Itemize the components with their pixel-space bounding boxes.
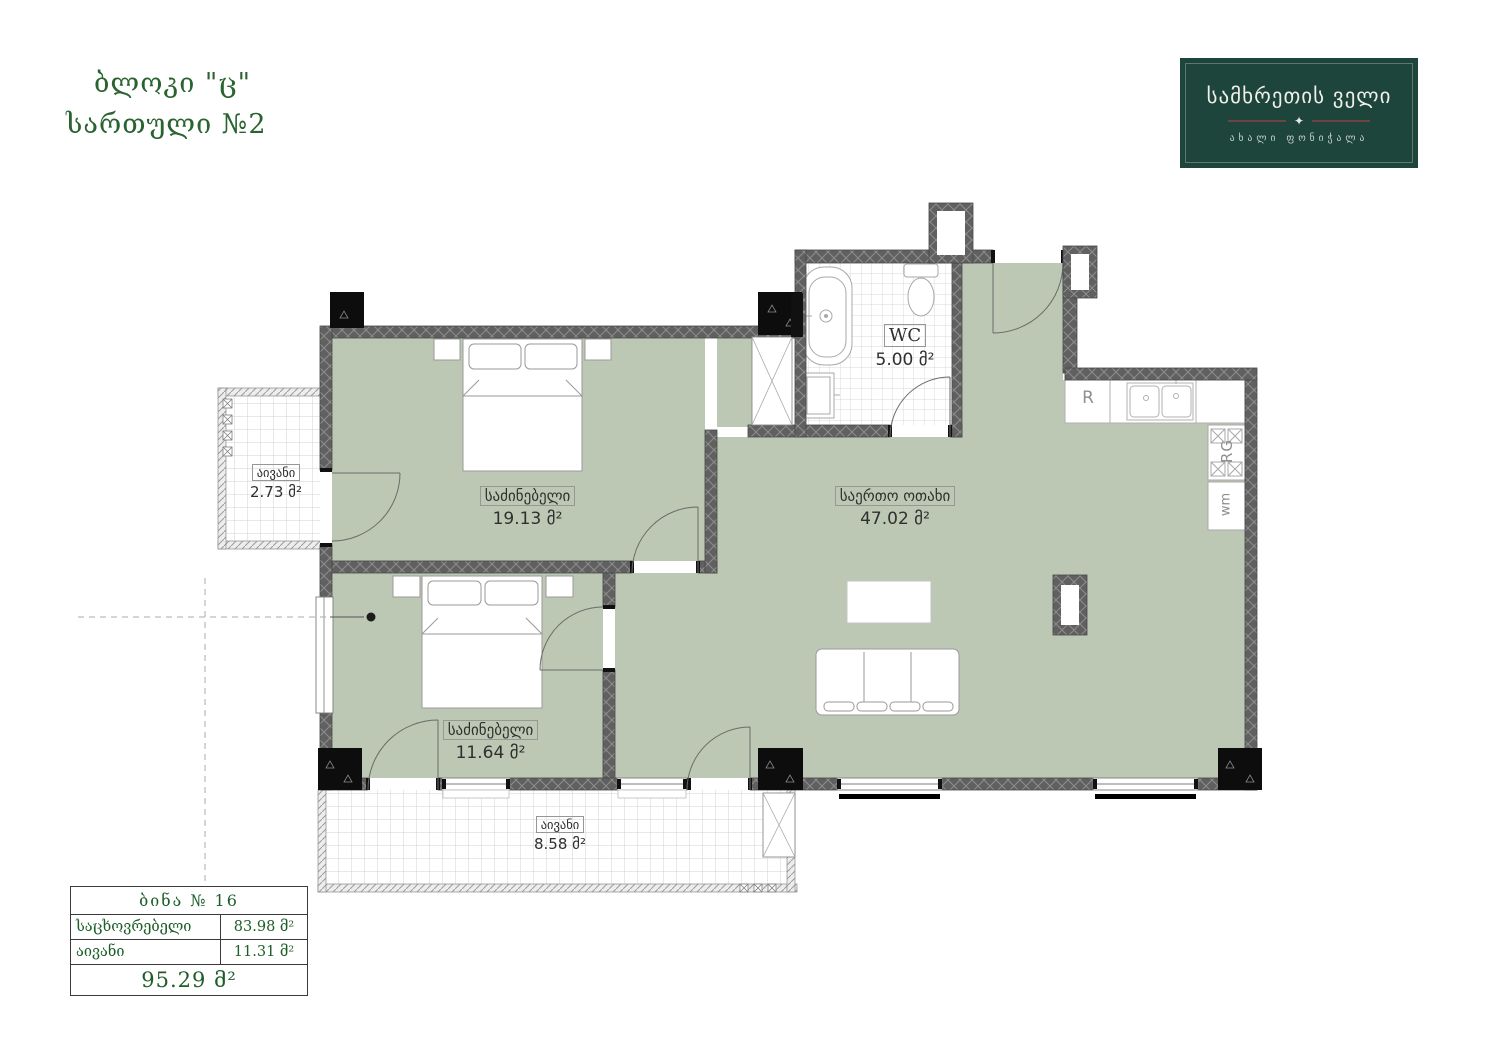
brand-logo: სამხრეთის ველი ✦ ახალი ფონიჭალა xyxy=(1180,58,1418,168)
brand-name: სამხრეთის ველი xyxy=(1207,84,1392,108)
brand-logo-frame: სამხრეთის ველი ✦ ახალი ფონიჭალა xyxy=(1185,63,1413,163)
divider-line-right xyxy=(1312,120,1370,122)
balcony-bottom-name: აივანი xyxy=(536,816,585,833)
row-label: საცხოვრებელი xyxy=(71,915,221,939)
balcony-left-name: აივანი xyxy=(252,464,301,481)
floor-plan-page: ბლოკი "ც" სართული №2 სამხრეთის ველი ✦ ახ… xyxy=(0,0,1488,1052)
balcony-bottom-label: აივანი 8.58 მ² xyxy=(475,814,645,853)
wc-label: WC 5.00 მ² xyxy=(855,324,955,370)
row-value: 83.98 მ² xyxy=(221,915,307,939)
living-room-label: საერთო ოთახი 47.02 მ² xyxy=(795,486,995,529)
fridge-label: R xyxy=(1070,388,1106,408)
total-area: 95.29 მ² xyxy=(71,965,307,995)
apartment-number: ბინა № 16 xyxy=(71,887,307,915)
area-summary-table: ბინა № 16 საცხოვრებელი 83.98 მ² აივანი 1… xyxy=(70,886,308,996)
wc-cabinet xyxy=(803,373,840,418)
bedroom2-name: საძინებელი xyxy=(443,720,539,740)
floor-title: სართული №2 xyxy=(66,105,267,146)
row-value: 11.31 მ² xyxy=(221,940,307,964)
table-row: აივანი 11.31 მ² xyxy=(71,940,307,965)
divider-line-left xyxy=(1228,120,1286,122)
balcony-left-area: 2.73 მ² xyxy=(222,483,330,501)
bedroom2-label: საძინებელი 11.64 მ² xyxy=(398,720,583,763)
living-room-name: საერთო ოთახი xyxy=(835,486,956,506)
bedroom2-area: 11.64 მ² xyxy=(398,743,583,763)
brand-subtitle: ახალი ფონიჭალა xyxy=(1230,133,1369,144)
row-label: აივანი xyxy=(71,940,221,964)
bedroom1-name: საძინებელი xyxy=(480,486,576,506)
bedroom1-area: 19.13 მ² xyxy=(435,509,620,529)
bathtub xyxy=(800,267,852,365)
wc-name: WC xyxy=(884,324,926,347)
bedroom1-label: საძინებელი 19.13 მ² xyxy=(435,486,620,529)
sofa xyxy=(816,649,959,715)
logo-divider: ✦ xyxy=(1228,115,1370,127)
table-row: საცხოვრებელი 83.98 მ² xyxy=(71,915,307,940)
page-title: ბლოკი "ც" სართული №2 xyxy=(66,64,267,145)
coffee-table xyxy=(847,581,931,623)
washer-label: wm xyxy=(1219,485,1234,525)
balcony-left-label: აივანი 2.73 მ² xyxy=(222,462,330,501)
balcony-bottom-area: 8.58 მ² xyxy=(475,835,645,853)
compass-icon: ✦ xyxy=(1294,115,1304,127)
living-room-area: 47.02 მ² xyxy=(795,509,995,529)
block-title: ბლოკი "ც" xyxy=(66,64,267,105)
wc-area: 5.00 მ² xyxy=(855,350,955,370)
range-label: RG xyxy=(1218,431,1236,471)
